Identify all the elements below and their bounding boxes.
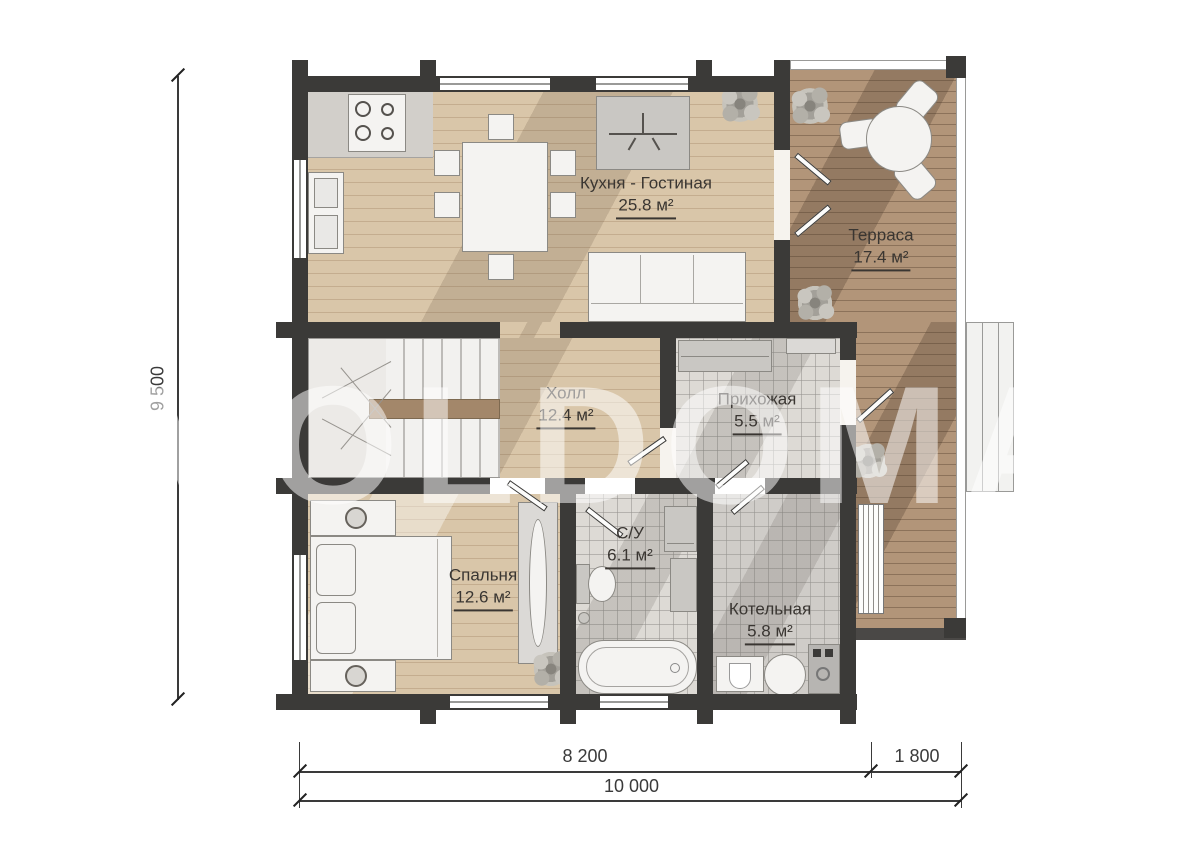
room-label-bathroom: С/У 6.1 м²: [605, 522, 655, 569]
wall-entry-right-b: [840, 425, 856, 710]
window-kitchen: [294, 160, 306, 258]
dimension-label-height: 9 500: [148, 349, 169, 429]
boiler-tank: [764, 654, 806, 696]
chair: [488, 254, 514, 280]
kitchen-sink: [308, 172, 344, 254]
staircase: [308, 338, 500, 478]
chair: [488, 114, 514, 140]
window-bedroom-bottom: [450, 696, 548, 708]
stair-landing: [369, 399, 500, 419]
wall-low-4: [765, 478, 857, 494]
room-area: 5.8 м²: [745, 621, 795, 646]
log-end: [774, 60, 790, 76]
room-name: Котельная: [729, 598, 811, 620]
pillow: [316, 544, 356, 596]
toilet: [588, 566, 616, 602]
window-top-1: [440, 78, 550, 90]
sofa: [588, 252, 746, 322]
wall-low-3: [635, 478, 715, 494]
bedroom-wardrobe: [518, 502, 558, 664]
terrace-table: [866, 106, 932, 172]
room-label-hall: Холл 12.4 м²: [536, 382, 595, 429]
chair: [550, 150, 576, 176]
room-label-boiler: Котельная 5.8 м²: [729, 598, 811, 645]
nightstand: [310, 500, 396, 536]
terrace-radiator: [858, 504, 884, 614]
chair: [550, 192, 576, 218]
floor-plan-canvas: Кухня - Гостиная 25.8 м² Терраса 17.4 м²…: [0, 0, 1200, 849]
plant: [786, 82, 834, 130]
terrace-post: [944, 618, 966, 638]
room-area: 12.4 м²: [536, 405, 595, 430]
doorway-living-terrace: [774, 150, 790, 240]
log-end: [420, 710, 436, 724]
wall-low-2: [545, 478, 585, 494]
washing-machine: [664, 506, 697, 552]
room-name: Терраса: [848, 224, 913, 246]
pillow: [316, 602, 356, 654]
room-area: 12.6 м²: [453, 587, 512, 612]
log-end: [276, 322, 292, 338]
tv-console: [596, 96, 690, 170]
chair: [434, 192, 460, 218]
room-name: Спальня: [449, 564, 517, 586]
chair: [434, 150, 460, 176]
wall-right-upper: [774, 76, 790, 150]
window-top-2: [596, 78, 688, 90]
nightstand: [310, 660, 396, 692]
room-label-terrace: Терраса 17.4 м²: [848, 224, 913, 271]
plant: [792, 280, 838, 326]
terrace-railing-top: [790, 60, 966, 70]
log-end: [276, 694, 292, 710]
room-area: 5.5 м²: [732, 411, 782, 436]
bathtub: [578, 640, 697, 694]
room-name: Прихожая: [718, 388, 797, 410]
stair-treads-upper: [386, 339, 500, 399]
dimension-label-terrace-width: 1 800: [880, 746, 954, 767]
room-name: Кухня - Гостиная: [580, 172, 712, 194]
log-end: [560, 710, 576, 724]
window-bedroom-left: [294, 555, 306, 660]
room-area: 17.4 м²: [851, 247, 910, 272]
exterior-steps: [966, 322, 1014, 492]
doorway-entry-terrace: [840, 360, 856, 425]
dimension-line-upper: [300, 771, 962, 773]
dimension-line-vertical: [177, 76, 179, 700]
boiler-sink: [716, 656, 764, 692]
stair-treads-lower: [386, 419, 500, 477]
window-bathroom: [600, 696, 668, 708]
passage-opening: [500, 322, 560, 338]
toilet-brush: [578, 612, 590, 624]
wall-living-hall-right: [560, 322, 857, 338]
log-end: [840, 710, 856, 724]
log-end: [292, 60, 308, 76]
terrace-railing-right: [956, 60, 966, 638]
wall-bath-right: [697, 494, 713, 694]
room-name: С/У: [605, 522, 655, 544]
wall-bottom: [292, 694, 857, 710]
room-label-entry: Прихожая 5.5 м²: [718, 388, 797, 435]
room-label-kitchen-living: Кухня - Гостиная 25.8 м²: [580, 172, 712, 219]
wall-boiler-unit: [808, 644, 840, 694]
dimension-label-total-width: 10 000: [584, 776, 679, 797]
dimension-label-house-width: 8 200: [540, 746, 630, 767]
room-name: Холл: [536, 382, 595, 404]
terrace-post: [946, 56, 966, 78]
room-area: 25.8 м²: [616, 195, 675, 220]
log-end: [696, 60, 712, 76]
log-end: [420, 60, 436, 76]
log-end: [276, 478, 292, 494]
wall-entry-right-a: [840, 338, 856, 360]
wall-hall-entry: [660, 338, 676, 428]
entry-wardrobe: [678, 340, 772, 372]
entry-bench: [786, 338, 836, 354]
wall-bath-left: [560, 494, 576, 694]
stove: [348, 94, 406, 152]
wall-low-1: [292, 478, 490, 494]
bath-sink-cabinet: [670, 558, 697, 612]
dimension-line-total: [300, 800, 962, 802]
room-area: 6.1 м²: [605, 545, 655, 570]
dining-table: [462, 142, 548, 252]
room-label-bedroom: Спальня 12.6 м²: [449, 564, 517, 611]
log-end: [697, 710, 713, 724]
wall-living-hall-left: [292, 322, 500, 338]
